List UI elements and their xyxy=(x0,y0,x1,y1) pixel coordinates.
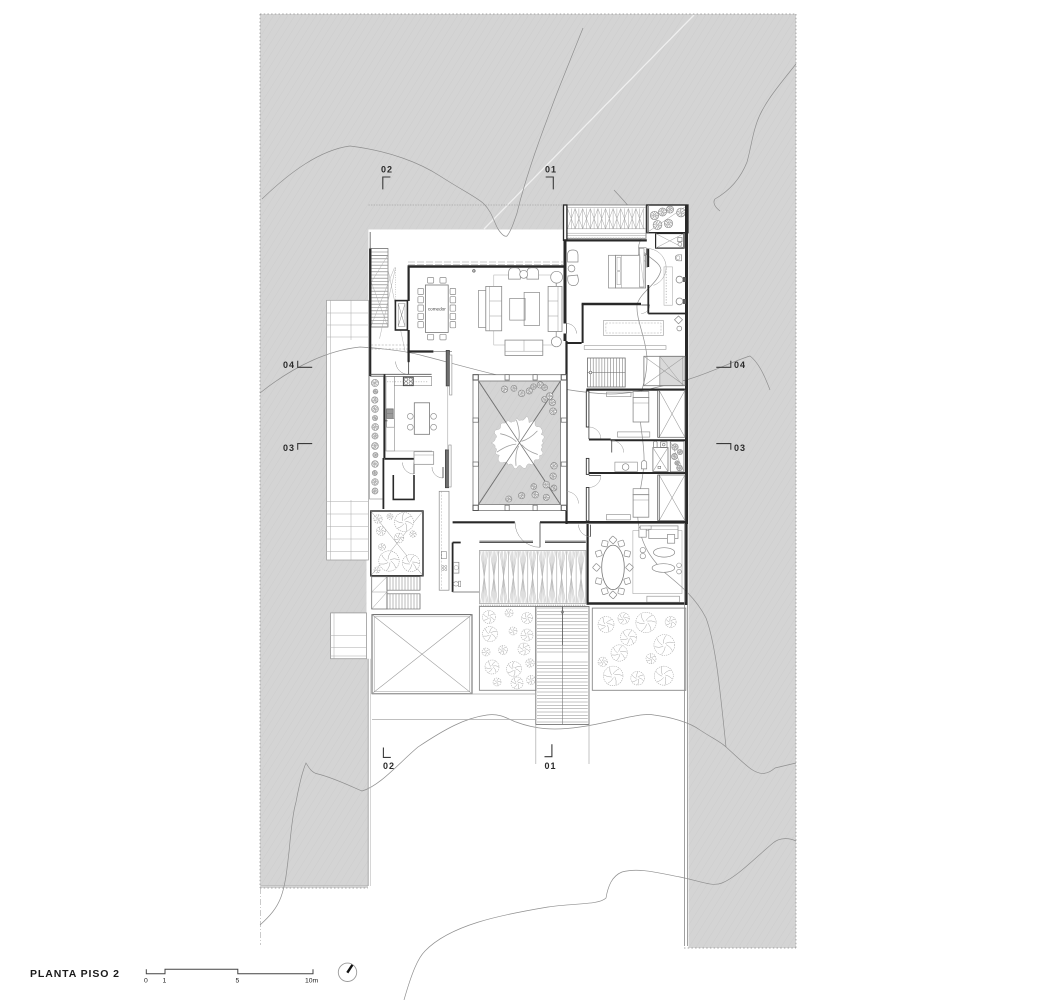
svg-text:10m: 10m xyxy=(305,978,319,985)
svg-text:PLANTA PISO 2: PLANTA PISO 2 xyxy=(30,968,120,980)
svg-text:03: 03 xyxy=(734,443,746,453)
svg-text:0: 0 xyxy=(144,978,148,985)
svg-text:1: 1 xyxy=(163,978,167,985)
svg-text:comedor: comedor xyxy=(428,307,446,312)
svg-text:01: 01 xyxy=(545,165,557,175)
svg-text:02: 02 xyxy=(383,761,395,771)
svg-text:04: 04 xyxy=(283,360,295,370)
svg-text:5: 5 xyxy=(236,978,240,985)
svg-text:03: 03 xyxy=(283,443,295,453)
svg-text:02: 02 xyxy=(381,165,393,175)
svg-text:04: 04 xyxy=(734,360,746,370)
svg-text:01: 01 xyxy=(545,761,557,771)
